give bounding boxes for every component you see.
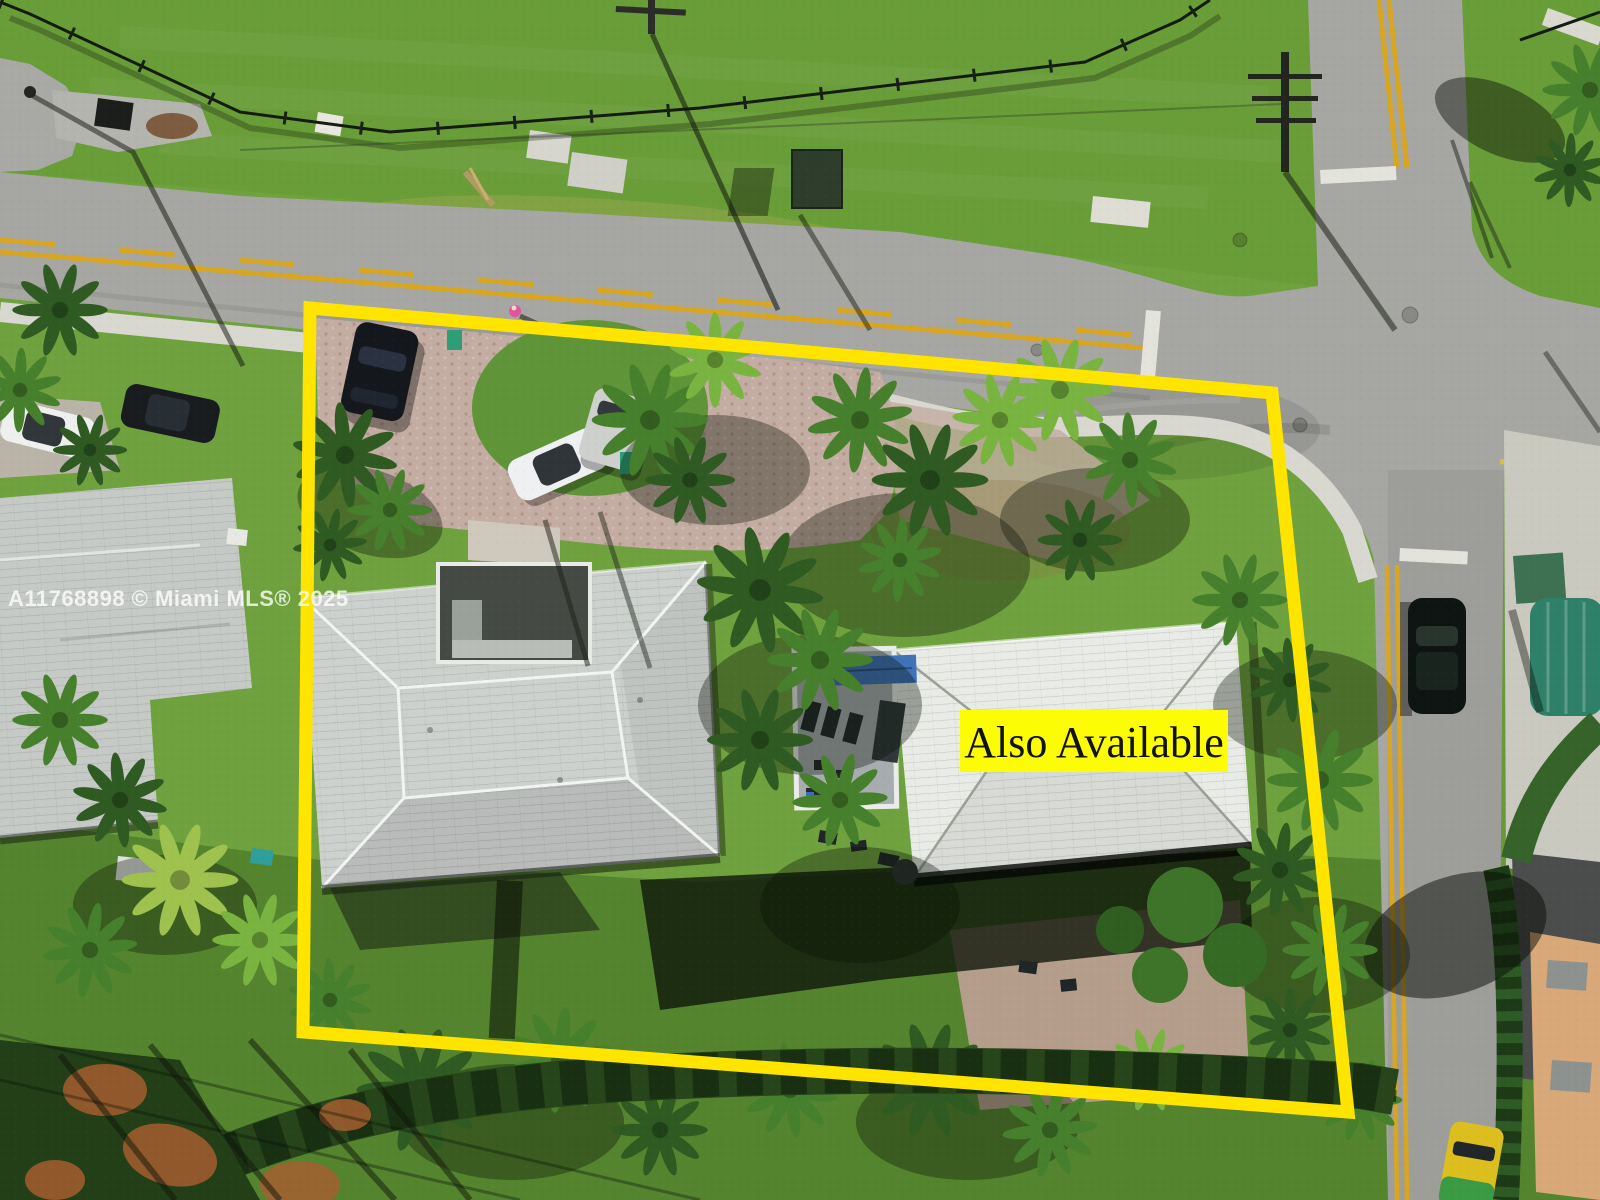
label-text: Also Available xyxy=(964,718,1223,767)
mls-watermark: A11768898 © Miami MLS® 2025 xyxy=(8,586,349,611)
aerial-photo-canvas: Also Available A11768898 © Miami MLS® 20… xyxy=(0,0,1600,1200)
aerial-photo: Also Available A11768898 © Miami MLS® 20… xyxy=(0,0,1600,1200)
also-available-label: Also Available xyxy=(960,710,1228,772)
